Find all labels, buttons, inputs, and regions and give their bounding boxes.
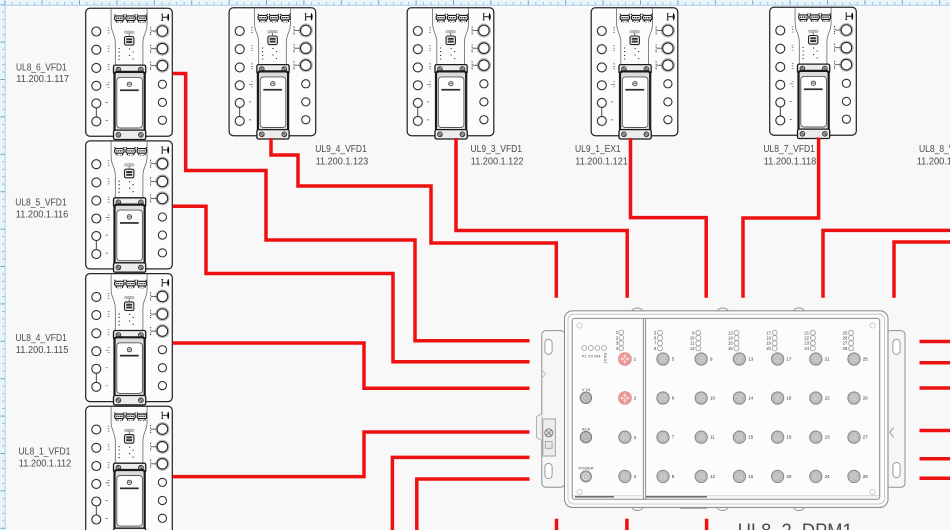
svg-text:11.200.1.118: 11.200.1.118 — [764, 157, 817, 168]
svg-text:28: 28 — [863, 474, 869, 479]
svg-text:3: 3 — [634, 435, 637, 440]
svg-text:UL8_4_VFD1: UL8_4_VFD1 — [15, 333, 67, 344]
svg-text:13: 13 — [748, 357, 754, 362]
svg-text:22: 22 — [825, 396, 831, 401]
svg-text:23: 23 — [825, 435, 831, 440]
svg-text:UL8_8_VFD1: UL8_8_VFD1 — [919, 144, 950, 155]
svg-text:UL8_2_DPM1: UL8_2_DPM1 — [738, 521, 853, 530]
svg-text:ACA: ACA — [582, 426, 591, 431]
svg-text:11.200.1.115: 11.200.1.115 — [16, 345, 69, 356]
svg-text:28: 28 — [843, 346, 848, 351]
svg-text:16: 16 — [728, 346, 733, 351]
svg-text:UL8_6_VFD1: UL8_6_VFD1 — [16, 63, 67, 74]
svg-text:15: 15 — [748, 435, 754, 440]
svg-text:V 24: V 24 — [582, 387, 591, 392]
svg-text:UL9_1_EX1: UL9_1_EX1 — [575, 144, 621, 155]
svg-text:20: 20 — [786, 474, 792, 479]
svg-text:UL9_4_VFD1: UL9_4_VFD1 — [315, 144, 367, 155]
svg-text:24: 24 — [804, 346, 809, 351]
svg-text:4: 4 — [634, 474, 637, 479]
svg-text:12: 12 — [690, 346, 695, 351]
svg-text:UL8_7_VFD1: UL8_7_VFD1 — [763, 144, 815, 155]
svg-text:3: 3 — [616, 341, 619, 346]
svg-text:P2: P2 — [588, 354, 594, 359]
svg-text:11.200.1.116: 11.200.1.116 — [16, 210, 69, 221]
svg-text:27: 27 — [863, 435, 869, 440]
svg-text:2: 2 — [616, 335, 619, 340]
svg-text:11.200.1.121: 11.200.1.121 — [575, 157, 628, 168]
svg-text:POWER: POWER — [578, 466, 593, 471]
svg-text:UL8_5_VFD1: UL8_5_VFD1 — [15, 198, 67, 209]
svg-text:20: 20 — [766, 346, 771, 351]
svg-text:12: 12 — [710, 474, 716, 479]
svg-text:11.200.1.122: 11.200.1.122 — [471, 157, 524, 168]
svg-text:11.200.1.117: 11.200.1.117 — [16, 74, 69, 85]
svg-text:UL9_3_VFD1: UL9_3_VFD1 — [471, 144, 523, 155]
svg-text:14: 14 — [748, 396, 754, 401]
svg-text:UL8_1_VFD1: UL8_1_VFD1 — [19, 446, 71, 457]
svg-text:25: 25 — [863, 357, 869, 362]
svg-text:RM: RM — [594, 354, 600, 359]
svg-text:2: 2 — [634, 396, 637, 401]
svg-text:19: 19 — [786, 435, 792, 440]
svg-text:1: 1 — [634, 357, 637, 362]
svg-text:18: 18 — [786, 396, 792, 401]
svg-text:16: 16 — [748, 474, 754, 479]
svg-text:FAULT: FAULT — [603, 353, 607, 365]
svg-text:24: 24 — [825, 474, 831, 479]
svg-text:4: 4 — [616, 346, 619, 351]
svg-text:26: 26 — [863, 396, 869, 401]
svg-text:11.200.1.112: 11.200.1.112 — [19, 459, 72, 470]
svg-text:10: 10 — [710, 396, 716, 401]
svg-text:11.200.1.119: 11.200.1.119 — [917, 157, 950, 168]
svg-text:17: 17 — [786, 357, 792, 362]
svg-text:21: 21 — [825, 357, 831, 362]
svg-text:11.200.1.123: 11.200.1.123 — [316, 157, 369, 168]
svg-text:11: 11 — [710, 435, 715, 440]
svg-text:P1: P1 — [582, 354, 588, 359]
svg-text:1: 1 — [616, 330, 619, 335]
